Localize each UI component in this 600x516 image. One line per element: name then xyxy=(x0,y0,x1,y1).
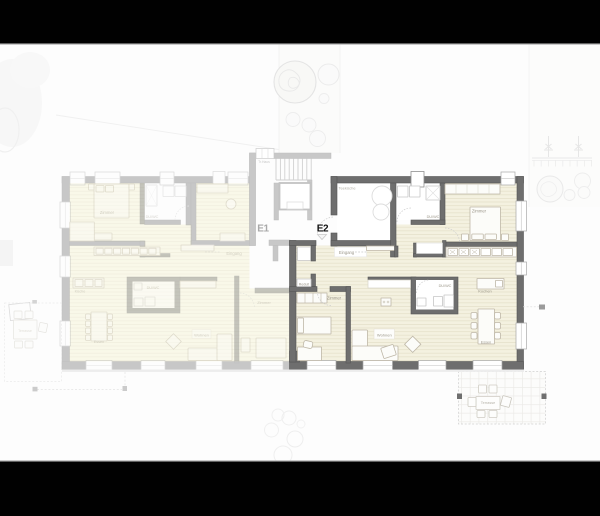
svg-text:Essen: Essen xyxy=(94,340,105,344)
svg-text:Küche: Küche xyxy=(75,290,86,294)
svg-text:Reduit: Reduit xyxy=(299,283,309,287)
svg-text:Wohnen: Wohnen xyxy=(194,333,209,338)
svg-text:DU/WC: DU/WC xyxy=(147,286,160,290)
svg-text:Zimmer: Zimmer xyxy=(100,210,115,215)
svg-text:Wohnen: Wohnen xyxy=(377,332,392,337)
svg-text:DU/WC: DU/WC xyxy=(146,215,159,219)
svg-text:Teeküche: Teeküche xyxy=(338,186,356,191)
svg-text:Terrasse: Terrasse xyxy=(18,329,32,333)
svg-text:Zimmer: Zimmer xyxy=(327,296,342,301)
svg-text:Terrasse: Terrasse xyxy=(481,401,496,405)
svg-text:E1: E1 xyxy=(257,224,269,235)
svg-text:Eingang: Eingang xyxy=(226,251,242,256)
svg-text:Essen: Essen xyxy=(481,341,492,345)
svg-text:DU/WC: DU/WC xyxy=(427,215,440,219)
svg-text:Eingang: Eingang xyxy=(339,250,355,255)
svg-text:Zimmer: Zimmer xyxy=(257,300,271,305)
svg-text:Tr.Haus: Tr.Haus xyxy=(258,160,270,164)
svg-text:E2: E2 xyxy=(317,224,329,235)
svg-text:Zimmer: Zimmer xyxy=(472,209,487,214)
svg-text:DU/WC: DU/WC xyxy=(439,284,452,288)
svg-text:Kochen: Kochen xyxy=(478,289,492,294)
